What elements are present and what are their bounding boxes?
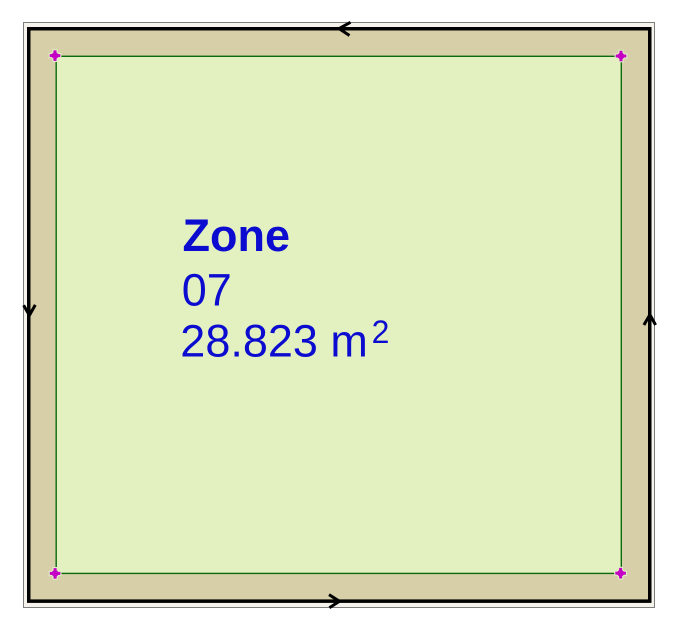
svg-text:07: 07 — [182, 265, 232, 316]
svg-text:2: 2 — [372, 314, 390, 350]
svg-text:Zone: Zone — [183, 210, 291, 261]
svg-text:28.823 m: 28.823 m — [180, 316, 368, 367]
